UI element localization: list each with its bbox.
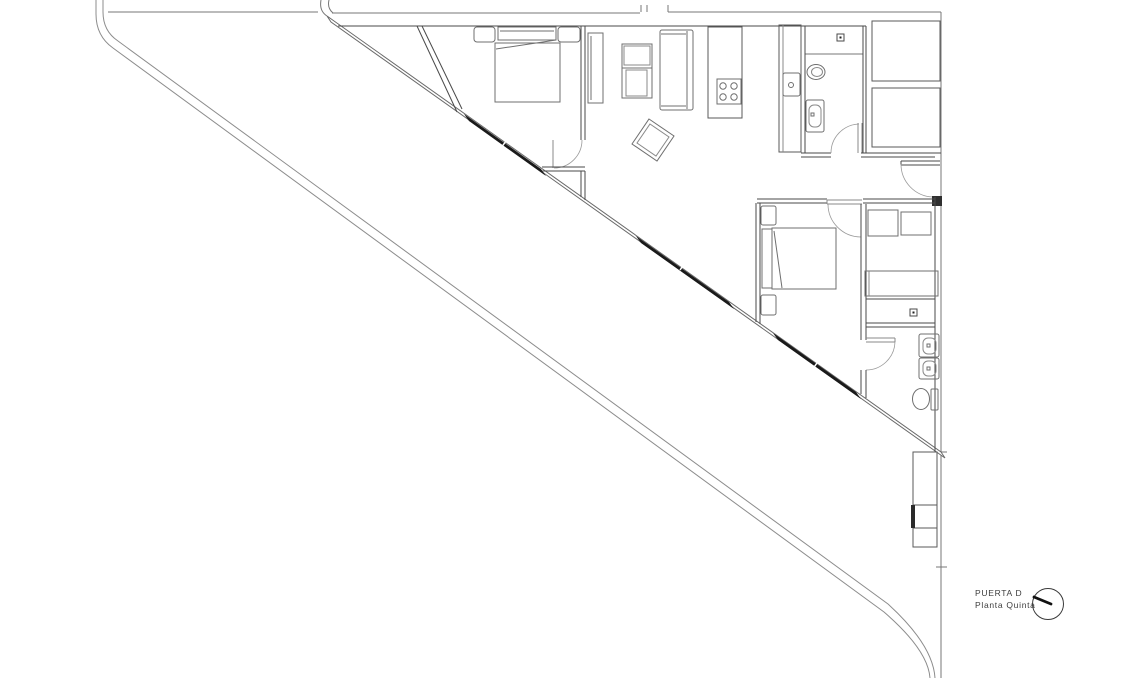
bedroom2-door-swing-arc (828, 204, 861, 237)
bath2-toilet-bowl (913, 389, 930, 410)
floorplan-sheet: PUERTA D Planta Quinta (0, 0, 1125, 678)
bedroom1-west-wall-b (422, 26, 462, 109)
bedroom1-bed (495, 43, 560, 102)
entry-column (932, 196, 942, 206)
bedroom2-bed (772, 228, 836, 289)
bedroom2-bed-fold-line (774, 231, 782, 288)
dressing-closet-1 (868, 210, 898, 236)
bedroom1-door-swing-arc (554, 140, 582, 168)
bath1-basin-tap (811, 113, 814, 116)
entry-door-swing-arc (901, 164, 933, 197)
kitchen-counter (779, 25, 801, 152)
facade-corner-stub-2 (329, 0, 334, 13)
kitchen-sink-drain (789, 83, 794, 88)
cooktop-burner-3 (720, 94, 726, 100)
bath1-shower-drain-dot (840, 37, 842, 39)
cooktop-burner-4 (731, 94, 737, 100)
armchair (632, 119, 674, 161)
bedroom2-nightstand-bottom (761, 295, 776, 315)
unit-label: PUERTA D (975, 588, 1095, 600)
sofa (660, 30, 693, 110)
shaft-box-upper (872, 21, 940, 81)
facade-glazing-panel-1 (464, 114, 546, 176)
bedroom1-bed-fold-line (496, 40, 556, 49)
facade-glazing-panel-2 (636, 236, 734, 309)
bedroom1-wardrobe (588, 33, 603, 103)
bedroom1-nightstand-left (474, 27, 495, 42)
bath2-basin-1-tap (927, 344, 930, 347)
bedroom2-headboard (762, 229, 772, 288)
floor-label: Planta Quinta (975, 600, 1095, 612)
tv-cabinet-inner-2 (626, 70, 647, 96)
bath1-toilet-seat (812, 68, 823, 77)
title-block: PUERTA D Planta Quinta (975, 588, 1095, 611)
floorplan-canvas (0, 0, 1125, 678)
bath1-door-swing-arc (831, 124, 859, 153)
bedroom1-headboard (498, 27, 556, 40)
dressing-closet-2 (901, 212, 931, 235)
bedroom1-west-wall-a (417, 26, 457, 112)
bath2-basin-2-tap (927, 367, 930, 370)
facade-corner-stub-1 (321, 0, 327, 16)
terrace-planter-dark-bar (911, 505, 915, 528)
shaft-box-lower (872, 88, 940, 147)
tv-cabinet-inner (624, 46, 650, 65)
bedroom1-nightstand-right (558, 27, 580, 42)
dressing-wardrobe (865, 271, 938, 296)
cooktop-burner-2 (731, 83, 737, 89)
cooktop-burner-1 (720, 83, 726, 89)
bedroom2-nightstand-top (761, 206, 776, 225)
cooktop (717, 79, 741, 104)
kitchen-sink (783, 73, 800, 96)
bath2-door-swing-arc (866, 342, 895, 370)
terrace-planter (913, 452, 937, 547)
bath2-shower-drain-dot (913, 312, 915, 314)
facade-glazing-panel-3 (773, 333, 861, 399)
